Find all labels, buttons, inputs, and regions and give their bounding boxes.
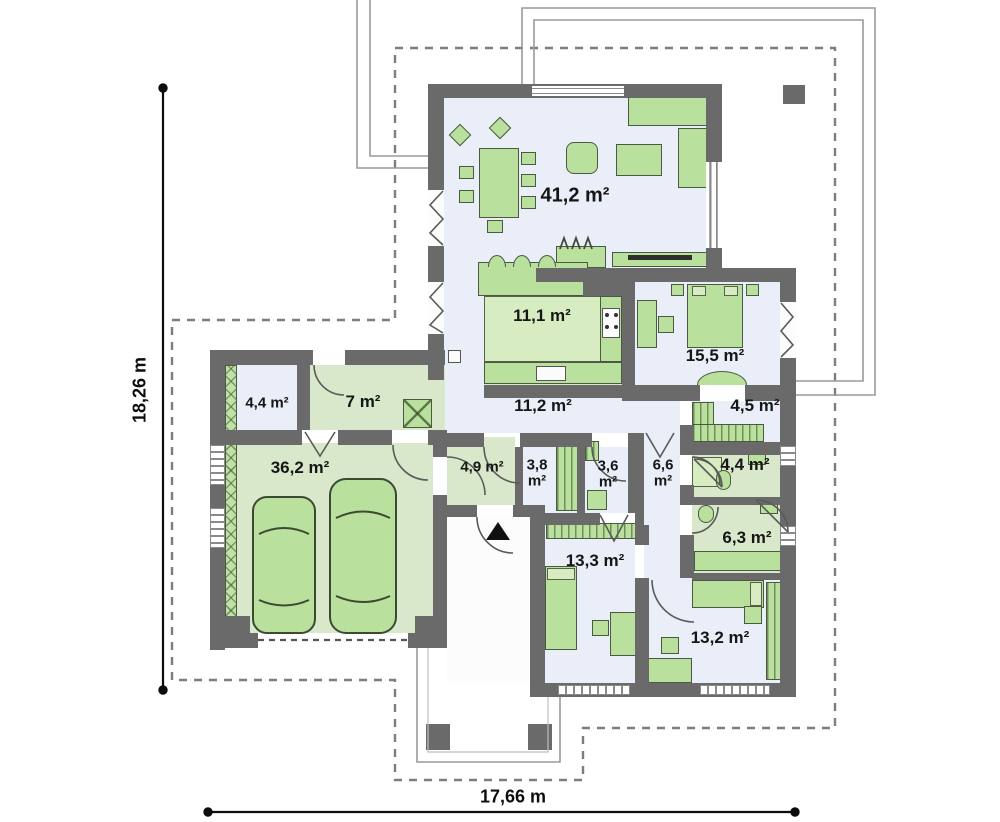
toilet — [698, 505, 714, 523]
east-wall — [780, 358, 796, 446]
dining-chair — [521, 152, 536, 165]
wing-top-wall — [210, 350, 313, 365]
east-wall — [780, 282, 796, 302]
label-garage: 36,2 m² — [271, 458, 330, 478]
terrace-sliding-door — [706, 162, 722, 248]
dining-chair — [487, 220, 503, 233]
dimension-width-label: 17,66 m — [480, 787, 546, 808]
desk-chair — [658, 316, 674, 333]
label-storage: 4,4 m² — [245, 395, 288, 412]
garage-pillar — [222, 616, 250, 633]
porch-floor — [447, 515, 530, 683]
top-window — [532, 86, 624, 96]
kitchen-east-wall — [622, 268, 635, 385]
garage-top-wall — [338, 430, 392, 445]
garage-east-wall — [433, 495, 447, 648]
tv-screen — [628, 255, 692, 260]
wall-opening — [428, 282, 444, 334]
wc-fixture — [587, 490, 607, 510]
dimension-height-label: 18,26 m — [130, 357, 151, 423]
label-bedroom-2: 13,3 m² — [566, 551, 625, 571]
terrace-outline — [357, 0, 428, 168]
west-window — [210, 445, 225, 485]
desk — [648, 658, 692, 683]
bath-divider-wall — [692, 497, 796, 505]
hall-south-wall — [628, 433, 644, 447]
boiler — [403, 399, 432, 428]
south-window — [558, 685, 630, 695]
right-wall — [706, 98, 722, 162]
garage-south-wall — [210, 633, 258, 648]
pantry-divider — [577, 447, 585, 513]
west-wall — [210, 485, 225, 508]
wing-divider-wall — [297, 365, 310, 430]
porch-east-wall — [530, 505, 545, 683]
desk-chair — [592, 620, 609, 636]
dining-chair — [459, 166, 474, 179]
hall-south-wall — [444, 433, 484, 447]
bedroom-divider-wall — [635, 578, 649, 683]
label-pantry: 3,8m² — [527, 457, 548, 488]
pillow — [692, 286, 706, 296]
dining-chair — [521, 196, 536, 209]
label-wardrobe: 4,5 m² — [730, 396, 779, 416]
dining-chair — [521, 174, 536, 187]
porch-top-wall — [447, 505, 477, 517]
left-wall — [428, 246, 444, 282]
dimension-line-width — [204, 808, 799, 816]
hall-basin — [448, 350, 461, 363]
bathtub — [694, 551, 790, 571]
desk — [637, 300, 657, 348]
bath-south-wall — [692, 573, 796, 580]
bedroom-divider-wall — [635, 525, 649, 545]
left-wall — [428, 98, 444, 190]
chimney-wall — [583, 276, 625, 296]
living-bottom-wall — [536, 268, 796, 282]
label-bedroom-3: 13,2 m² — [691, 628, 750, 648]
stove — [602, 308, 620, 338]
wardrobe-shelf — [692, 424, 764, 442]
garage-top-wall — [210, 430, 302, 445]
east-window — [780, 446, 796, 466]
coffee-table — [616, 144, 662, 176]
nightstand — [671, 284, 684, 296]
label-living-room: 41,2 m² — [541, 185, 610, 208]
east-window — [780, 526, 796, 546]
label-vestibule: 4,9 m² — [460, 459, 503, 476]
east-wall — [780, 546, 796, 696]
wall-opening — [428, 190, 444, 246]
label-kitchen: 11,1 m² — [513, 306, 571, 326]
floor-plan: 41,2 m² 11,1 m² 11,2 m² 15,5 m² 4,5 m² 4… — [0, 0, 1000, 822]
dining-table — [479, 148, 519, 218]
sofa — [628, 94, 710, 126]
south-window — [700, 685, 770, 695]
label-wc: 3,6m² — [598, 458, 619, 489]
label-bathroom-small: 4,4 m² — [720, 455, 769, 475]
master-south-wall — [622, 385, 700, 401]
label-bathroom: 6,3 m² — [722, 528, 771, 548]
desk-chair — [661, 637, 679, 654]
wall-opening — [780, 302, 796, 358]
porch-column — [528, 724, 552, 750]
dimension-line-height — [159, 84, 167, 694]
bedroom-2-top-wall — [545, 513, 600, 525]
hall-south-wall — [520, 433, 592, 447]
armchair — [566, 142, 598, 174]
pantry-divider — [515, 447, 523, 513]
wing-top-wall — [345, 350, 445, 365]
desk — [610, 612, 638, 656]
label-utility-room: 7 m² — [346, 392, 381, 412]
label-hall: 11,2 m² — [514, 396, 572, 416]
corridor-east-wall — [680, 535, 694, 578]
east-wall — [780, 466, 796, 526]
pillow — [750, 582, 762, 606]
terrace-outline-inner — [370, 0, 428, 156]
porch-column — [426, 724, 450, 750]
label-master-bedroom: 15,5 m² — [686, 346, 745, 366]
nightstand — [746, 284, 759, 296]
dining-chair — [459, 190, 474, 203]
insulation-strip — [225, 365, 237, 633]
chimney-block — [783, 85, 805, 104]
bedroom-2-closet — [546, 523, 636, 539]
bedroom-2-top-wall — [635, 513, 644, 525]
pantry-shelving — [556, 441, 578, 511]
kitchen-sink — [536, 366, 566, 381]
pillow — [724, 286, 738, 296]
shelf — [744, 606, 762, 624]
wc-divider — [628, 447, 644, 513]
west-window — [210, 508, 225, 548]
label-corridor: 6,6m² — [653, 457, 674, 488]
